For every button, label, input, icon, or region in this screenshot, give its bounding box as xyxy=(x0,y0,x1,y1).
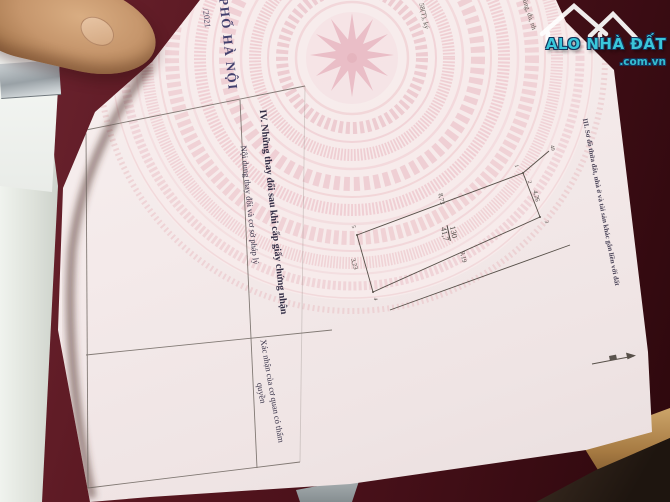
folder-metal-clip xyxy=(0,60,61,99)
thumb-nail xyxy=(75,11,119,52)
page-fold-shadow xyxy=(70,66,150,498)
vertex-label-5: 5 xyxy=(350,225,356,229)
column-header-confirmation: Xác nhận của cơ quan có thẩm quyền xyxy=(247,334,288,451)
left-shelf-surface xyxy=(0,46,62,502)
north-arrow-icon xyxy=(592,353,636,364)
vertex-label-2: 2 xyxy=(526,180,532,184)
section4-table-lines xyxy=(0,0,670,502)
certificate-page: /2021 PHỐ HÀ NỘI 58(T), ký đúng, đủ, nh … xyxy=(0,0,670,502)
vertex-label-4: 4 xyxy=(372,297,378,301)
section4-heading: IV. Những thay đổi sau khi cấp giấy chứn… xyxy=(257,109,289,315)
parcel-sketch-lines xyxy=(0,0,670,502)
parcel-number-area-label: 130 41,7 xyxy=(438,223,459,242)
dong-son-drum-pattern xyxy=(0,0,670,502)
section3-heading: III. Sơ đồ thửa đất, nhà ở và tài sản kh… xyxy=(581,118,621,287)
edge-text-fragment-2: đúng, đủ, nh xyxy=(520,0,538,31)
edge-length-bottom: 9,19 xyxy=(458,251,467,264)
vertex-label-1: 1 xyxy=(513,164,519,168)
adjacent-parcel-label: 49 xyxy=(548,145,555,152)
vertex-label-3: 3 xyxy=(543,220,549,224)
document-folder xyxy=(0,46,60,192)
handwritten-year-fragment: /2021 xyxy=(201,8,213,28)
column-header-content: Nội dung thay đổi và cơ sở pháp lý xyxy=(239,145,261,265)
edge-length-left: 3,23 xyxy=(349,258,359,271)
issuer-stamp-text: PHỐ HÀ NỘI xyxy=(215,0,241,91)
edge-text-fragment-1: 58(T), ký xyxy=(417,2,430,30)
edge-length-right: 4,26 xyxy=(531,190,541,203)
edge-length-top: 8,73 xyxy=(436,193,445,206)
photo-of-land-certificate: /2021 PHỐ HÀ NỘI 58(T), ký đúng, đủ, nh … xyxy=(0,0,670,502)
